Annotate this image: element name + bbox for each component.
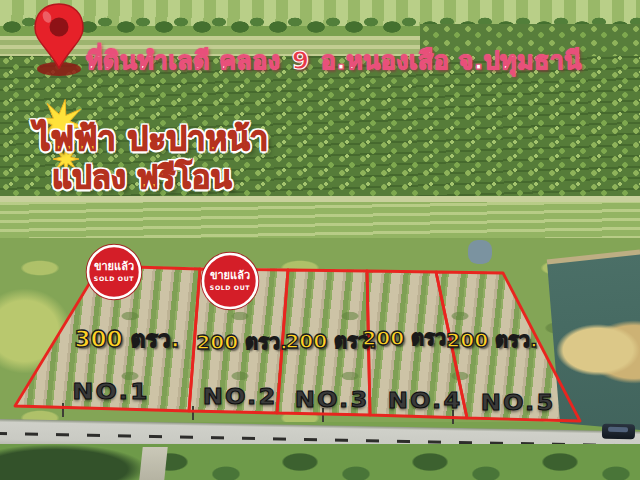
sold-badge-thai: ขายแล้ว <box>94 260 134 273</box>
plot-number-label-5: NO.5 <box>481 391 556 415</box>
sold-badge-english: SOLD OUT <box>94 275 134 282</box>
headline-suffix: อ.หนองเสือ จ.ปทุมธานี <box>321 46 582 75</box>
khlong-number: 9 <box>290 46 312 75</box>
headline: ที่ดินทำเลดี คลอง 9 อ.หนองเสือ จ.ปทุมธาน… <box>86 40 582 80</box>
plot-number-label-4: NO.4 <box>388 389 463 413</box>
plot-area-label-4: 200 ตรว. <box>362 322 453 354</box>
headline-prefix: ที่ดินทำเลดี คลอง <box>86 46 280 75</box>
plot-number-label-2: NO.2 <box>203 385 278 409</box>
location-pin-icon <box>35 4 83 76</box>
pond-bank <box>547 252 640 262</box>
promo-line-2: แปลง ฟรีโอน <box>52 152 232 202</box>
sold-out-badge-2: ขายแล้ว SOLD OUT <box>202 253 259 310</box>
plot-number-label-3: NO.3 <box>295 388 370 412</box>
plot-number-label-1: NO.1 <box>72 379 149 405</box>
plot-area-label-5: 200 ตรว. <box>446 324 537 356</box>
sold-out-badge-1: ขายแล้ว SOLD OUT <box>87 245 142 300</box>
plot-area-label-2: 200 ตรว. <box>196 326 287 358</box>
plot-area-label-1: 300 ตรว. <box>75 321 180 357</box>
land-ad-photo: ขายแล้ว SOLD OUT ขายแล้ว SOLD OUT ที่ดิน… <box>0 0 640 480</box>
sold-badge-english: SOLD OUT <box>210 284 250 291</box>
sold-badge-thai: ขายแล้ว <box>210 269 250 282</box>
